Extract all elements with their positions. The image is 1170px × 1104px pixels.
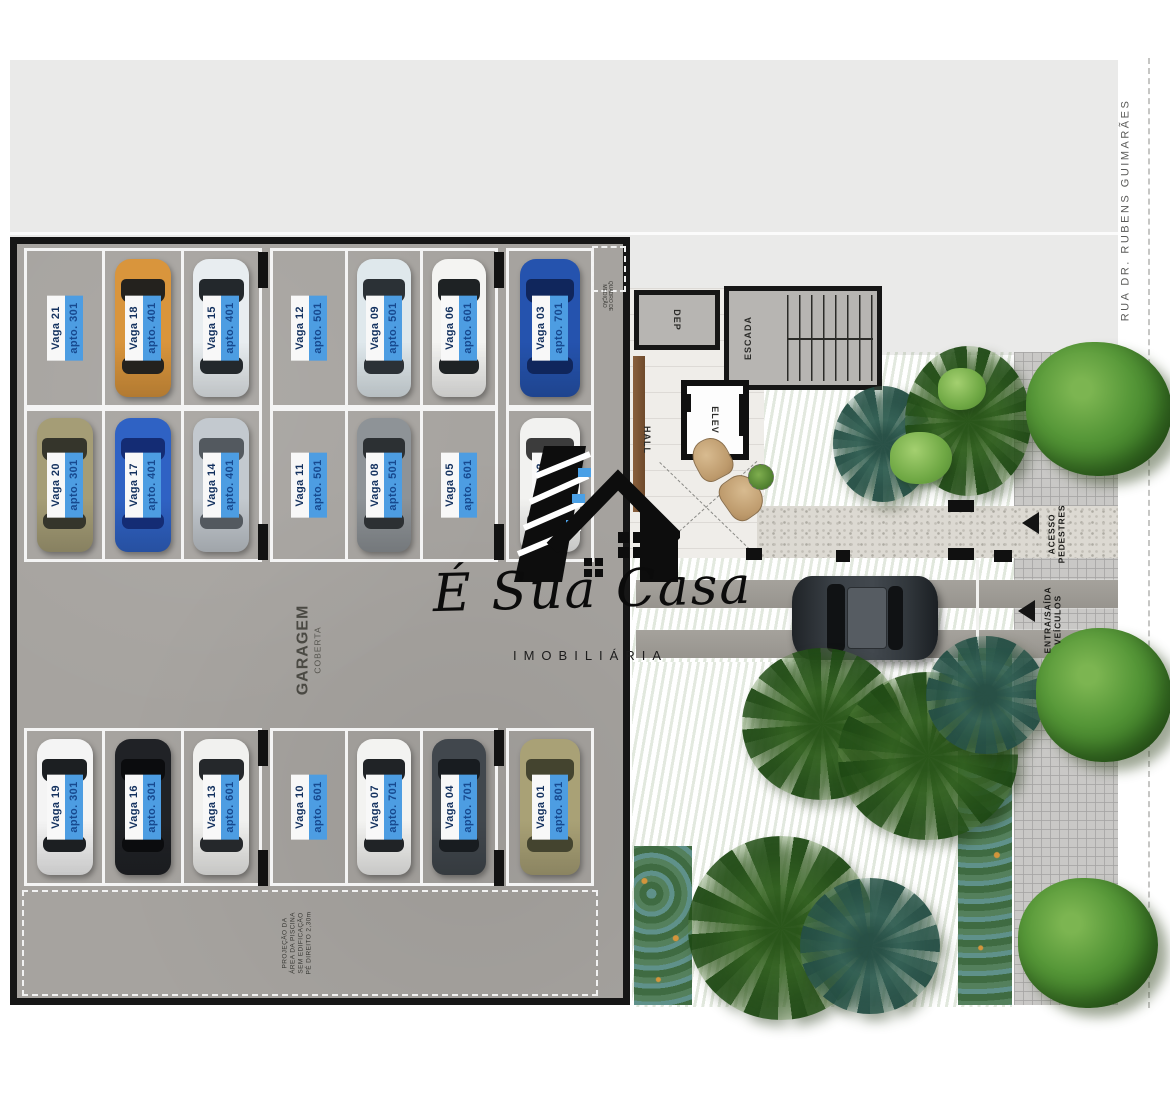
parking-spot: Vaga 08apto. 501	[348, 411, 423, 559]
curb-line	[10, 232, 1118, 235]
vaga-number-label: Vaga 13	[203, 774, 221, 839]
parking-spot-label: Vaga 10apto. 601	[291, 774, 327, 839]
apartment-number-label: apto. 701	[384, 774, 402, 839]
parking-group: Vaga 12apto. 501Vaga 09apto. 501Vaga 06a…	[270, 248, 498, 408]
parking-spot-label: Vaga 15apto. 401	[203, 295, 239, 360]
stair-treads	[787, 295, 873, 381]
gate-post	[948, 548, 974, 560]
parking-spot-label: Vaga 21apto. 301	[47, 295, 83, 360]
garage-title: GARAGEM COBERTA	[268, 575, 348, 725]
vaga-number-label: Vaga 15	[203, 295, 221, 360]
palm-tree	[926, 636, 1046, 754]
parking-spot: Vaga 14apto. 401	[184, 411, 259, 559]
car-roof	[847, 587, 887, 649]
gate-post	[948, 500, 974, 512]
utility-note-text: QUADRO DEMEDIÇÃO	[601, 281, 613, 311]
apartment-number-label: apto. 401	[221, 295, 239, 360]
column-marker	[494, 730, 504, 766]
parking-group: Vaga 11apto. 501Vaga 08apto. 501Vaga 05a…	[270, 408, 498, 562]
apartment-number-label: apto. 501	[309, 295, 327, 360]
vaga-number-label: Vaga 14	[203, 452, 221, 517]
parking-spot-label: Vaga 13apto. 601	[203, 774, 239, 839]
apartment-number-label: apto. 501	[309, 452, 327, 517]
apartment-number-label: apto. 401	[221, 452, 239, 517]
parking-group: Vaga 19apto. 301Vaga 16apto. 301Vaga 13a…	[24, 728, 262, 886]
vaga-number-label: Vaga 11	[291, 452, 309, 517]
label-line: PÉ DIREITO 2,30m	[305, 912, 313, 975]
parking-spot: Vaga 03apto. 701	[509, 251, 591, 405]
column-marker	[258, 252, 268, 288]
vaga-number-label: Vaga 07	[366, 774, 384, 839]
vaga-number-label: Vaga 10	[291, 774, 309, 839]
apartment-number-label: apto. 401	[143, 295, 161, 360]
column-marker	[494, 850, 504, 886]
parking-spot-label: Vaga 18apto. 401	[125, 295, 161, 360]
vehicle-access-label: ENTRA/SAÍDAVEÍCULOS	[1032, 570, 1072, 670]
parking-spot-label: Vaga 04apto. 701	[441, 774, 477, 839]
vaga-number-label: Vaga 19	[47, 774, 65, 839]
parking-spot-label: Vaga 14apto. 401	[203, 452, 239, 517]
parking-group: Vaga 20apto. 301Vaga 17apto. 401Vaga 14a…	[24, 408, 262, 562]
vaga-number-label: Vaga 04	[441, 774, 459, 839]
apartment-number-label: apto. 401	[143, 452, 161, 517]
room-escada-label: ESCADA	[743, 316, 753, 360]
label-line: ENTRA/SAÍDA	[1042, 587, 1052, 654]
parking-spot-label: Vaga 17apto. 401	[125, 452, 161, 517]
room-dep-label: DEP	[672, 309, 682, 331]
gate-post	[994, 550, 1012, 562]
parking-spot-label: Vaga 03apto. 701	[532, 295, 568, 360]
sidewalk-area-top	[10, 60, 1118, 238]
label-line: SEM EDIFICAÇÃO	[297, 912, 305, 973]
apartment-number-label: apto. 501	[384, 452, 402, 517]
pool-projection-note: PROJEÇÃO DAÁREA DA PISCINASEM EDIFICAÇÃO…	[252, 892, 342, 994]
parking-spot-label: Vaga 09apto. 501	[366, 295, 402, 360]
parking-spot: Vaga 15apto. 401	[184, 251, 259, 405]
apartment-number-label: apto. 701	[550, 295, 568, 360]
parking-spot: Vaga 10apto. 601	[273, 731, 348, 883]
column-marker	[494, 252, 504, 288]
parking-spot-label: Vaga 19apto. 301	[47, 774, 83, 839]
apartment-number-label: apto. 601	[309, 774, 327, 839]
label-line: QUADRO DE	[607, 281, 613, 311]
column-marker	[258, 850, 268, 886]
car-rear-window	[888, 586, 903, 650]
parking-spot-label: Vaga 05apto. 601	[441, 452, 477, 517]
gate-post	[836, 550, 850, 562]
apartment-number-label: apto. 601	[459, 452, 477, 517]
parking-group: Vaga 21apto. 301Vaga 18apto. 401Vaga 15a…	[24, 248, 262, 408]
parking-spot: Vaga 11apto. 501	[273, 411, 348, 559]
pedestrian-access-text: ACESSOPEDESTRES	[1046, 505, 1066, 564]
garage-subtitle-text: COBERTA	[312, 626, 322, 673]
vaga-number-label: Vaga 03	[532, 295, 550, 360]
vaga-number-label: Vaga 08	[366, 452, 384, 517]
apartment-number-label: apto. 301	[143, 774, 161, 839]
parking-spot: Vaga 06apto. 601	[423, 251, 495, 405]
apartment-number-label: apto. 601	[221, 774, 239, 839]
column-marker	[258, 730, 268, 766]
shrub-bed-left	[634, 846, 692, 1005]
label-line: MEDIÇÃO	[601, 284, 607, 307]
vaga-number-label: Vaga 20	[47, 452, 65, 517]
parking-spot: Vaga 17apto. 401	[105, 411, 183, 559]
parking-spot: Vaga 01apto. 801	[509, 731, 591, 883]
label-line: ACESSO	[1046, 514, 1056, 555]
elev-label: ELEV	[710, 406, 720, 434]
label-line: PROJEÇÃO DA	[281, 918, 289, 969]
palm-tree	[800, 878, 940, 1014]
apartment-number-label: apto. 301	[65, 452, 83, 517]
apartment-number-label: apto. 501	[384, 295, 402, 360]
parking-spot-label: Vaga 11apto. 501	[291, 452, 327, 517]
vaga-number-label: Vaga 17	[125, 452, 143, 517]
parking-spot-label: Vaga 20apto. 301	[47, 452, 83, 517]
label-line: VEÍCULOS	[1052, 595, 1062, 645]
parking-spot: Vaga 04apto. 701	[423, 731, 495, 883]
parking-spot: Vaga 13apto. 601	[184, 731, 259, 883]
street-name-label: RUA DR. RUBENS GUIMARÃES	[1119, 99, 1131, 322]
apartment-number-label: apto. 701	[459, 774, 477, 839]
vaga-number-label: Vaga 18	[125, 295, 143, 360]
parking-group: Vaga 01apto. 801	[506, 728, 594, 886]
parking-spot-label: Vaga 07apto. 701	[366, 774, 402, 839]
room-escada: ESCADA	[724, 286, 882, 390]
label-line: ÁREA DA PISCINA	[289, 912, 297, 974]
parking-group: Vaga 03apto. 701	[506, 248, 594, 408]
parking-spot-label: Vaga 12apto. 501	[291, 295, 327, 360]
site-plan: RUA DR. RUBENS GUIMARÃES Vaga 21apto. 30…	[0, 0, 1170, 1104]
apartment-number-label: apto. 801	[550, 774, 568, 839]
vaga-number-label: Vaga 06	[441, 295, 459, 360]
property-boundary-dashed-line	[1148, 58, 1150, 1008]
vaga-number-label: Vaga 16	[125, 774, 143, 839]
vaga-number-label: Vaga 09	[366, 295, 384, 360]
car-windshield	[827, 584, 845, 651]
parking-spot-label: Vaga 06apto. 601	[441, 295, 477, 360]
utility-note: QUADRO DEMEDIÇÃO	[584, 250, 630, 342]
parking-spot: Vaga 05apto. 601	[423, 411, 495, 559]
pedestrian-access-label: ACESSOPEDESTRES	[1036, 486, 1076, 582]
column-marker	[258, 524, 268, 560]
street-tree	[1018, 878, 1158, 1008]
street-name: RUA DR. RUBENS GUIMARÃES	[1104, 60, 1146, 360]
parking-spot: Vaga 20apto. 301	[27, 411, 105, 559]
parking-spot-label: Vaga 08apto. 501	[366, 452, 402, 517]
potted-plant	[748, 464, 774, 490]
logo-subtitle: IMOBILIÁRIA	[478, 648, 703, 668]
street-tree	[1026, 342, 1170, 476]
vaga-number-label: Vaga 21	[47, 295, 65, 360]
parking-spot: Vaga 09apto. 501	[348, 251, 423, 405]
garage-title-text: GARAGEM	[294, 605, 312, 696]
label-line: PEDESTRES	[1056, 505, 1066, 564]
apartment-number-label: apto. 301	[65, 774, 83, 839]
parking-spot-label: Vaga 16apto. 301	[125, 774, 161, 839]
parking-spot: Vaga 12apto. 501	[273, 251, 348, 405]
vaga-number-label: Vaga 12	[291, 295, 309, 360]
parking-spot: Vaga 07apto. 701	[348, 731, 423, 883]
parking-spot: Vaga 18apto. 401	[105, 251, 183, 405]
logo-title: É Sua Casa	[407, 555, 779, 655]
parking-spot: Vaga 16apto. 301	[105, 731, 183, 883]
parking-group: Vaga 10apto. 601Vaga 07apto. 701Vaga 04a…	[270, 728, 498, 886]
parking-spot-label: Vaga 01apto. 801	[532, 774, 568, 839]
parking-spot: Vaga 19apto. 301	[27, 731, 105, 883]
pool-projection-note-text: PROJEÇÃO DAÁREA DA PISCINASEM EDIFICAÇÃO…	[281, 912, 313, 975]
apartment-number-label: apto. 601	[459, 295, 477, 360]
vaga-number-label: Vaga 01	[532, 774, 550, 839]
vaga-number-label: Vaga 05	[441, 452, 459, 517]
vehicle-access-text: ENTRA/SAÍDAVEÍCULOS	[1042, 587, 1062, 654]
room-dep: DEP	[634, 290, 720, 350]
parking-spot: Vaga 21apto. 301	[27, 251, 105, 405]
apartment-number-label: apto. 301	[65, 295, 83, 360]
